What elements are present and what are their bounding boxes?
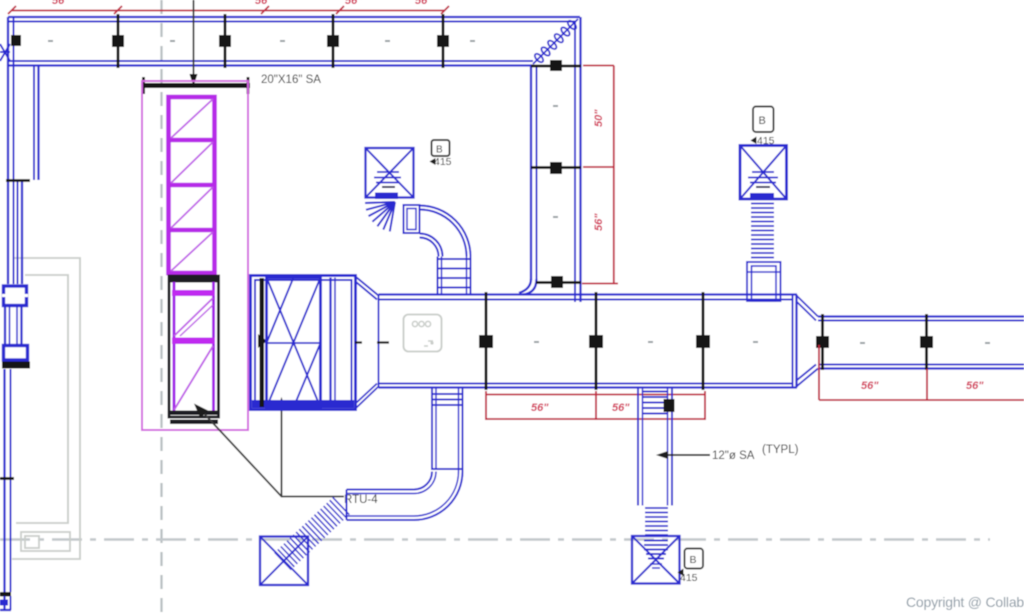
- svg-text:56": 56": [345, 0, 363, 7]
- svg-text:RTU-4: RTU-4: [344, 494, 378, 506]
- svg-text:56": 56": [52, 0, 70, 7]
- svg-text:12"ø SA: 12"ø SA: [712, 450, 755, 462]
- svg-text:B: B: [690, 554, 697, 566]
- svg-text:(TYPL): (TYPL): [762, 444, 799, 456]
- svg-text:56": 56": [861, 380, 879, 392]
- svg-text:56": 56": [415, 0, 433, 7]
- svg-text:Copyright @ Collabor: Copyright @ Collabor: [906, 594, 1024, 610]
- svg-text:56": 56": [612, 402, 630, 414]
- svg-text:20"X16" SA: 20"X16" SA: [261, 74, 321, 86]
- svg-text:56": 56": [255, 0, 273, 7]
- svg-text:B: B: [436, 145, 443, 156]
- svg-text:415: 415: [680, 572, 698, 584]
- svg-text:56": 56": [593, 213, 605, 231]
- svg-text:56": 56": [531, 402, 549, 414]
- svg-text:50": 50": [593, 109, 605, 127]
- svg-text:B: B: [759, 115, 766, 127]
- svg-text:415: 415: [434, 156, 452, 168]
- svg-text:56": 56": [966, 380, 984, 392]
